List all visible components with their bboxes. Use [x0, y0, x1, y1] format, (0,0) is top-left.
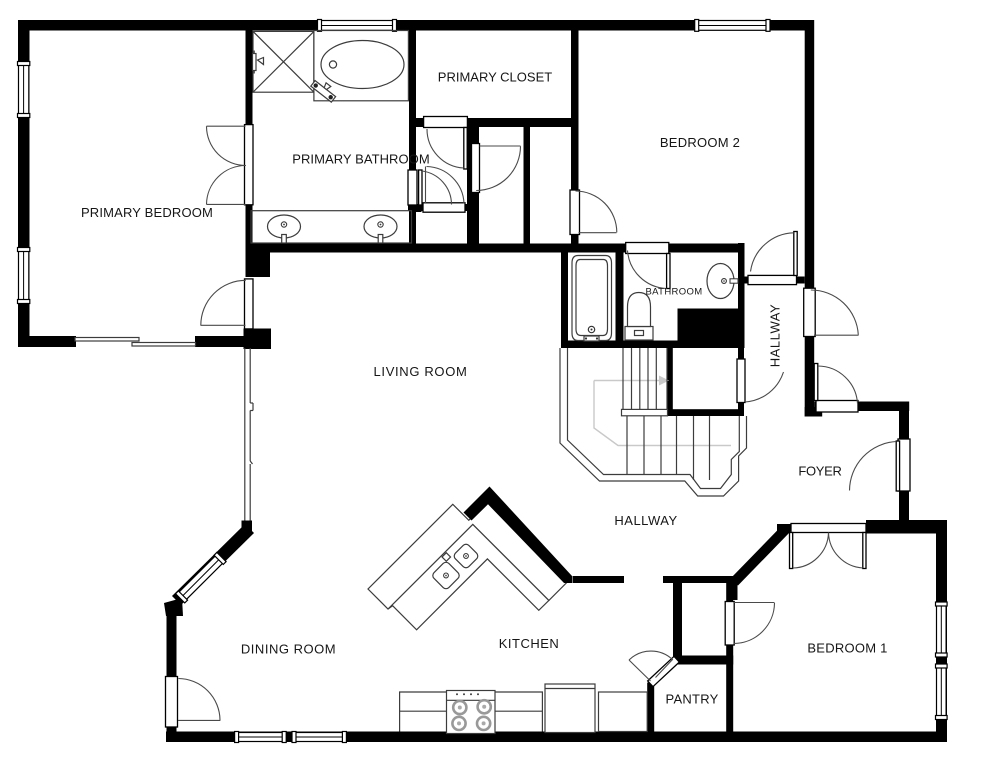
svg-text:BATHROOM: BATHROOM	[646, 287, 703, 298]
svg-text:HALLWAY: HALLWAY	[614, 513, 677, 528]
svg-text:LIVING ROOM: LIVING ROOM	[374, 364, 468, 379]
svg-text:PRIMARY BEDROOM: PRIMARY BEDROOM	[81, 205, 213, 220]
svg-text:PRIMARY CLOSET: PRIMARY CLOSET	[438, 70, 552, 85]
svg-text:BEDROOM 1: BEDROOM 1	[807, 641, 887, 656]
svg-text:FOYER: FOYER	[798, 464, 841, 479]
svg-text:HALLWAY: HALLWAY	[768, 304, 783, 368]
svg-text:BEDROOM 2: BEDROOM 2	[660, 135, 740, 150]
svg-text:KITCHEN: KITCHEN	[499, 636, 560, 651]
svg-text:PRIMARY BATHROOM: PRIMARY BATHROOM	[292, 152, 429, 167]
svg-text:DINING ROOM: DINING ROOM	[241, 642, 336, 657]
svg-text:PANTRY: PANTRY	[665, 692, 718, 707]
